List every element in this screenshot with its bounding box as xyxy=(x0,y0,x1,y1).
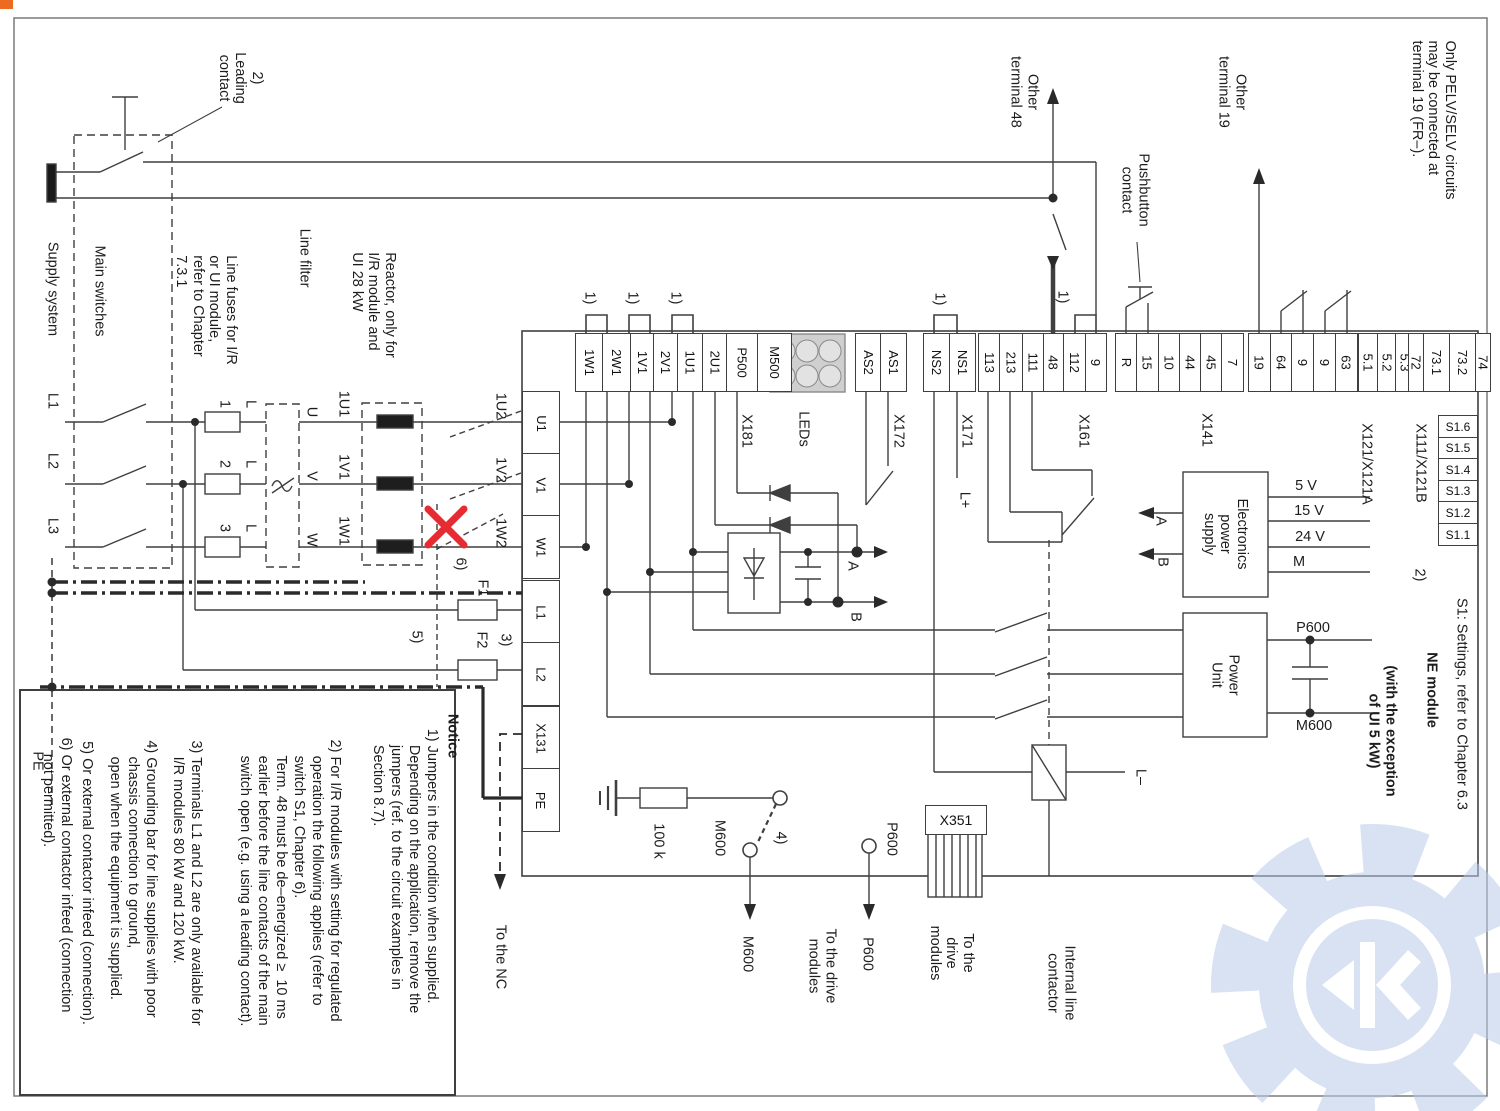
contactor-contact-icon xyxy=(995,613,1047,632)
terminal-cell: 2W1 xyxy=(602,333,631,392)
as-contact-icon xyxy=(866,471,893,505)
jumper-ref-label: 1) xyxy=(581,292,598,305)
w-label: W xyxy=(303,533,320,547)
terminal-cell: 72 xyxy=(1408,333,1424,392)
note-3: 3) Terminals L1 and L2 are only availabl… xyxy=(169,740,205,1025)
pushbutton-icon xyxy=(1053,214,1066,250)
s1-switch-cell[interactable]: S1.3 xyxy=(1438,480,1478,503)
s1-dip-switch[interactable]: S1.6S1.5S1.4S1.3S1.2S1.1 xyxy=(1438,415,1478,546)
terminal-cell: 2U1 xyxy=(702,333,728,392)
note-2: 2) For I/R modules with setting for regu… xyxy=(236,740,344,1027)
f2-label: F2 xyxy=(473,632,490,649)
s1-note-ref-label: 2) xyxy=(1411,569,1428,582)
to-nc-wire xyxy=(500,734,522,876)
diode-icon xyxy=(770,485,790,501)
ne-module-box xyxy=(522,331,1478,876)
terminal-cell: 73.1 xyxy=(1423,333,1450,392)
terminal-strip-x172: AS2AS1 xyxy=(855,333,900,392)
main-switch-box xyxy=(74,135,172,568)
other-terminal-48-label: Other terminal 48 xyxy=(1008,56,1041,128)
a-in-label: A xyxy=(1152,516,1169,526)
l-plus-label: L+ xyxy=(956,492,973,509)
terminal-cell: 15 xyxy=(1136,333,1159,392)
led-icon xyxy=(796,365,818,387)
schematic-page: 1W12W11V12V11U12U1P500M500 AS2AS1 NS2NS1… xyxy=(0,0,1500,1111)
15v-label: 15 V xyxy=(1294,503,1324,519)
1u2-label: 1U2 xyxy=(492,393,509,420)
note-5: 5) Or external contactor infeed (connect… xyxy=(78,741,96,1025)
jumper-ref-label: 1) xyxy=(1054,291,1071,304)
terminal-cell: 5.1 xyxy=(1358,333,1378,392)
note3-ref-label: 3) xyxy=(497,634,514,647)
to-drive-modules-label: To the drive modules xyxy=(806,929,839,1004)
terminal-cell: AS1 xyxy=(880,333,907,392)
s1-switch-cell[interactable]: S1.4 xyxy=(1438,458,1478,481)
terminal-strip-x111: 7273.173.274 xyxy=(1408,333,1478,392)
x141-label: X141 xyxy=(1198,413,1215,447)
a-rail-label: A xyxy=(844,561,861,571)
m600-arrow-label: M600 xyxy=(739,936,756,972)
resistor-100k-label: 100 k xyxy=(650,823,667,858)
pelv-note-label: Only PELV/SELV circuits may be connected… xyxy=(1408,40,1458,199)
fuse1-label: 1 xyxy=(216,400,233,408)
x121-label: X121/X121A xyxy=(1358,423,1375,504)
x172-label: X172 xyxy=(890,414,907,448)
filter-symbol-icon xyxy=(272,478,294,493)
terminal-pe: PE xyxy=(522,768,560,832)
x111-label: X111/X121B xyxy=(1412,423,1429,502)
note6-ref-label: 6) xyxy=(452,558,469,571)
l2-label: L2 xyxy=(44,453,61,469)
s1-switch-cell[interactable]: S1.6 xyxy=(1438,415,1478,438)
leading-contact-label: 2) Leading contact xyxy=(215,52,265,104)
arrow-down-icon xyxy=(863,904,875,920)
terminal-strip-x161: 113213111481129 xyxy=(978,333,1107,392)
x351-label: X351 xyxy=(925,805,987,835)
terminal-strip-x121: 19649963 xyxy=(1248,333,1358,392)
terminal-l2: L2 xyxy=(522,642,560,706)
to-drive-modules-label: To the drive modules xyxy=(926,926,976,981)
1w1-label: 1W1 xyxy=(335,516,352,546)
terminal-cell: 73.2 xyxy=(1449,333,1476,392)
terminal-cell: 74 xyxy=(1475,333,1491,392)
arrow-down-icon xyxy=(744,904,756,920)
terminal-strip-x141: R151044457 xyxy=(1115,333,1244,392)
l3-label: L3 xyxy=(44,518,61,534)
note-4: 4) Grounding bar for line supplies with … xyxy=(106,740,160,1017)
s1-switch-cell[interactable]: S1.2 xyxy=(1438,501,1478,524)
terminal-cell: 9 xyxy=(1085,333,1107,392)
arrow-up-icon xyxy=(1047,88,1059,104)
s1-switch-cell[interactable]: S1.5 xyxy=(1438,437,1478,460)
fuse3-label: 3 xyxy=(216,524,233,532)
terminal-strip-x181: 1W12W11V12V11U12U1P500M500 xyxy=(575,333,747,392)
terminal-cell: 44 xyxy=(1179,333,1202,392)
supply-system-label: Supply system xyxy=(44,242,61,336)
note-6: 6) Or external contactor infeed (connect… xyxy=(39,738,75,1013)
red-x-icon xyxy=(428,509,464,545)
jumper-ref-label: 1) xyxy=(624,292,641,305)
note5-ref-label: 5) xyxy=(408,631,425,644)
contactor-contact-icon xyxy=(995,657,1047,676)
led-icon xyxy=(796,340,818,362)
internal-line-contactor-label: Internal line contactor xyxy=(1045,946,1078,1021)
line-filter-label: Line filter xyxy=(296,229,313,288)
eps-label: Electronics power supply xyxy=(1200,499,1250,570)
reactor-label: Reactor, only for I/R module and UI 28 k… xyxy=(348,252,398,358)
fuse2-label: 2 xyxy=(216,460,233,468)
terminal-cell: 7 xyxy=(1221,333,1244,392)
pushbutton-contact-label: Pushbutton contact xyxy=(1119,153,1152,226)
jumper-ref-label: 1) xyxy=(667,292,684,305)
arrow-up-icon xyxy=(1253,168,1265,184)
terminal-cell: P500 xyxy=(726,333,758,392)
m600-tap-label: M600 xyxy=(711,820,728,856)
p600-tap-label: P600 xyxy=(883,822,900,856)
terminal-u1: U1 xyxy=(522,391,560,455)
led-icon xyxy=(819,365,841,387)
note4-ref-label: 4) xyxy=(772,832,789,845)
led-icon xyxy=(819,340,841,362)
ne-exception-label: (with the exception of UI 5 kW) xyxy=(1366,665,1399,796)
24v-label: 24 V xyxy=(1295,529,1325,545)
terminal-cell: 1U1 xyxy=(677,333,703,392)
m-label: M xyxy=(1293,554,1305,570)
m600-label: M600 xyxy=(1296,718,1332,734)
terminal-cell: 45 xyxy=(1200,333,1223,392)
v-label: V xyxy=(303,471,320,481)
5v-label: 5 V xyxy=(1295,478,1317,494)
terminal-cell: M500 xyxy=(757,333,792,392)
b-rail-label: B xyxy=(847,612,864,622)
contactor-contact-icon xyxy=(995,700,1047,719)
terminal-cell: 5.2 xyxy=(1377,333,1397,392)
f1-label: F1 xyxy=(474,580,491,597)
arrow-right-icon xyxy=(874,546,888,558)
terminal-cell: 1W1 xyxy=(575,333,604,392)
1v1-label: 1V1 xyxy=(335,454,352,480)
ne-module-label: NE module xyxy=(1423,652,1440,728)
arrow-down-icon xyxy=(494,874,506,890)
fuse2-l-label: L xyxy=(242,460,259,468)
aux-contact-icon xyxy=(1062,498,1094,535)
terminal-cell: 113 xyxy=(978,333,1001,392)
x161-label: X161 xyxy=(1075,414,1092,448)
terminal-cell: 1V1 xyxy=(630,333,655,392)
leading-contact-icon xyxy=(100,152,143,172)
1w2-label: 1W2 xyxy=(492,518,509,548)
arrow-down-icon xyxy=(1047,256,1059,270)
terminal-cell: AS2 xyxy=(855,333,882,392)
other-terminal-19-label: Other terminal 19 xyxy=(1216,56,1249,128)
terminal-cell: 9 xyxy=(1313,333,1336,392)
arrow-left-icon xyxy=(1138,548,1154,560)
p600-arrow-label: P600 xyxy=(859,937,876,971)
terminal-cell: 112 xyxy=(1063,333,1086,392)
terminal-strip-x121-narrow: 5.15.25.3 xyxy=(1358,333,1403,392)
terminal48-circuit xyxy=(1053,100,1259,333)
fuse1-l-label: L xyxy=(242,400,259,408)
note-1: 1) Jumpers in the condition when supplie… xyxy=(369,729,441,1014)
terminal-strip-x171: NS2NS1 xyxy=(923,333,968,392)
terminal-x131: X131 xyxy=(522,706,560,770)
resistor-100k-icon xyxy=(640,788,687,808)
line-fuses-label: Line fuses for I/R or UI module, refer t… xyxy=(173,255,239,365)
s1-switch-cell[interactable]: S1.1 xyxy=(1438,523,1478,546)
terminal-cell: 2V1 xyxy=(653,333,678,392)
x171-label: X171 xyxy=(958,414,975,448)
main-switches-label: Main switches xyxy=(91,245,108,336)
u-label: U xyxy=(303,407,320,417)
to-the-nc-label: To the NC xyxy=(492,925,509,989)
x181-label: X181 xyxy=(738,414,755,448)
terminal-cell: 64 xyxy=(1270,333,1293,392)
tap-circles xyxy=(743,791,876,857)
p600-label: P600 xyxy=(1296,620,1330,636)
s1-settings-label: S1: Settings, refer to Chapter 6.3 xyxy=(1453,598,1470,810)
terminal-cell: 63 xyxy=(1335,333,1358,392)
supply-section xyxy=(47,97,1096,687)
terminal-cell: 213 xyxy=(999,333,1023,392)
terminal-cell: NS2 xyxy=(923,333,950,392)
terminal-w1: W1 xyxy=(522,515,560,579)
corner-watermark-icon xyxy=(0,0,13,9)
terminal-l1: L1 xyxy=(522,580,560,644)
notice-heading: Notice xyxy=(444,714,461,758)
1v2-label: 1V2 xyxy=(492,457,509,483)
power-unit-label: Power Unit xyxy=(1209,654,1242,695)
terminal-cell: 9 xyxy=(1291,333,1314,392)
terminal-v1: V1 xyxy=(522,453,560,517)
terminal-cell: NS1 xyxy=(949,333,976,392)
diode-icon xyxy=(770,517,790,533)
busbar-icon xyxy=(47,164,56,202)
terminal-cell: R xyxy=(1115,333,1138,392)
b-in-label: B xyxy=(1154,557,1171,567)
terminal-cell: 10 xyxy=(1158,333,1181,392)
jumper-ref-label: 1) xyxy=(931,293,948,306)
leds-label: LEDs xyxy=(795,411,812,446)
fuse3-l-label: L xyxy=(242,524,259,532)
arrow-right-icon xyxy=(874,596,888,608)
l-minus-label: L– xyxy=(1132,769,1149,785)
terminal-cell: 19 xyxy=(1248,333,1271,392)
terminal-cell: 111 xyxy=(1022,333,1044,392)
l1-label: L1 xyxy=(44,393,61,409)
1u1-label: 1U1 xyxy=(335,391,352,418)
terminal-cell: 48 xyxy=(1043,333,1065,392)
